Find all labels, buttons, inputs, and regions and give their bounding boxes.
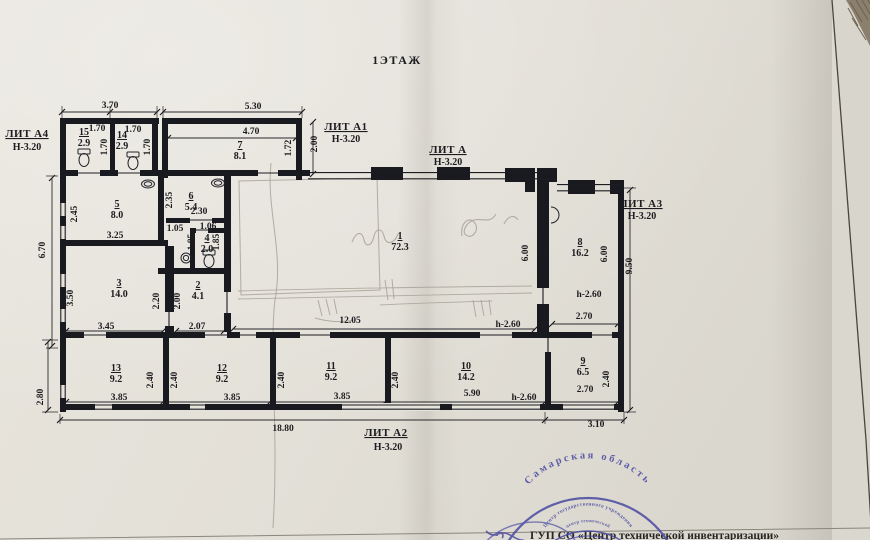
- dimension-label: 2.07: [189, 322, 206, 332]
- dimension-label: 2.80: [36, 388, 46, 405]
- dimension-label: h-2.60: [576, 290, 601, 300]
- dimension-label: 4.70: [243, 127, 260, 137]
- dimension-label: 3.85: [111, 393, 128, 403]
- lit-a-height: Н-3.20: [434, 157, 463, 168]
- floor-plan-drawing: 1ЭТАЖ ЛИТ А4 Н-3.20 ЛИТ А1 Н-3.20 ЛИТ А …: [0, 0, 870, 540]
- dimension-label: 12.05: [339, 316, 361, 326]
- dimension-label: 1.70: [100, 138, 110, 155]
- lit-a2-height: Н-3.20: [374, 442, 403, 453]
- room-area: 2.9: [116, 141, 129, 152]
- dimension-label: 2.70: [576, 312, 593, 322]
- room-number: 12: [217, 363, 227, 374]
- lit-a1-height: Н-3.20: [332, 134, 361, 145]
- dimension-label: 5.30: [245, 102, 262, 112]
- room-area: 72.3: [391, 242, 409, 253]
- dimension-label: 2.35: [165, 191, 175, 208]
- room-area: 2.9: [78, 138, 91, 149]
- dimension-label: 6.70: [38, 241, 48, 258]
- room-area: 16.2: [571, 248, 589, 259]
- room-number: 3: [117, 278, 122, 289]
- room-number: 8: [578, 237, 583, 248]
- dimension-label: 3.45: [98, 322, 115, 332]
- dimension-label: 2.45: [70, 205, 80, 222]
- dimension-label: h-2.60: [511, 393, 536, 403]
- paper-fold-crease: [398, 0, 462, 540]
- dimension-label: 3.85: [224, 393, 241, 403]
- dimension-label: 1.70: [125, 125, 142, 135]
- dimension-label: 2.00: [310, 135, 320, 152]
- dimension-label: h-2.60: [495, 320, 520, 330]
- room-area: 9.2: [325, 372, 338, 383]
- room-area: 4.1: [192, 291, 205, 302]
- dimension-label: 1.05: [167, 224, 184, 234]
- lit-a2-label: ЛИТ А2: [364, 427, 407, 439]
- lit-a4-height: Н-3.20: [13, 142, 42, 153]
- dimension-label: 2.40: [602, 370, 612, 387]
- dimension-label: 1.06: [200, 222, 217, 232]
- room-number: 7: [238, 140, 243, 151]
- dimension-label: 2.40: [277, 371, 287, 388]
- room-number: 11: [326, 361, 335, 372]
- lit-a-label: ЛИТ А: [429, 144, 466, 156]
- room-number: 4: [205, 233, 210, 244]
- room-number: 13: [111, 363, 121, 374]
- dimension-label: 2.40: [391, 371, 401, 388]
- dimension-label: 6.00: [521, 244, 531, 261]
- room-area: 9.2: [110, 374, 123, 385]
- lit-a3-height: Н-3.20: [628, 211, 657, 222]
- dimension-label: 18.80: [272, 424, 294, 434]
- room-area: 14.0: [110, 289, 128, 300]
- dimension-label: 9.50: [625, 257, 635, 274]
- dimension-label: 2.40: [170, 371, 180, 388]
- room-area: 8.1: [234, 151, 247, 162]
- dimension-label: 3.10: [588, 420, 605, 430]
- room-number: 5: [115, 199, 120, 210]
- dimension-label: 1.70: [143, 138, 153, 155]
- room-number: 1: [398, 231, 403, 242]
- room-number: 15: [79, 127, 89, 138]
- scanned-floor-plan-photo: 1ЭТАЖ ЛИТ А4 Н-3.20 ЛИТ А1 Н-3.20 ЛИТ А …: [0, 0, 870, 540]
- dimension-label: 2.30: [191, 207, 208, 217]
- dimension-label: 2.70: [577, 385, 594, 395]
- room-area: 8.0: [111, 210, 124, 221]
- dimension-label: 3.25: [107, 231, 124, 241]
- paper-background: [0, 0, 870, 540]
- room-number: 10: [461, 361, 471, 372]
- page-title: 1ЭТАЖ: [372, 53, 422, 67]
- room-area: 6.5: [577, 367, 590, 378]
- dimension-label: 2.00: [173, 292, 183, 309]
- room-area: 14.2: [457, 372, 475, 383]
- dimension-label: 6.00: [600, 245, 610, 262]
- dimension-label: 2.40: [146, 371, 156, 388]
- lit-a3-label: ЛИТ А3: [619, 198, 662, 210]
- lit-a4-label: ЛИТ А4: [5, 128, 48, 140]
- dimension-label: 1.85: [212, 233, 222, 250]
- dimension-label: 3.70: [102, 101, 119, 111]
- room-area: 9.2: [216, 374, 229, 385]
- room-number: 2: [196, 280, 201, 291]
- dimension-label: 5.90: [464, 389, 481, 399]
- dimension-label: 3.50: [66, 289, 76, 306]
- lit-a1-label: ЛИТ А1: [324, 121, 367, 133]
- dimension-label: 1.70: [89, 124, 106, 134]
- room-number: 9: [581, 356, 586, 367]
- room-number: 6: [189, 191, 194, 202]
- dimension-label: 1.72: [284, 139, 294, 156]
- dimension-label: 1.85: [187, 233, 197, 250]
- dimension-label: 2.20: [152, 292, 162, 309]
- dimension-label: 3.85: [334, 392, 351, 402]
